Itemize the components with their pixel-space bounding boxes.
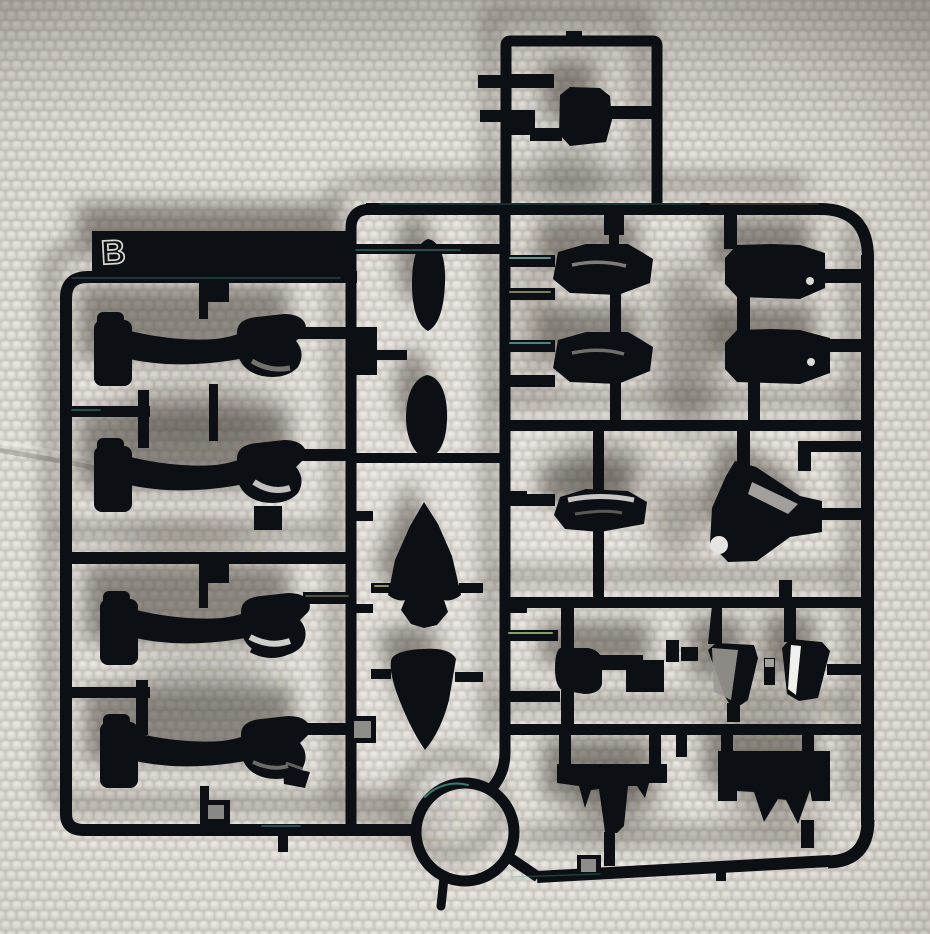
svg-text:B: B [100,233,127,272]
